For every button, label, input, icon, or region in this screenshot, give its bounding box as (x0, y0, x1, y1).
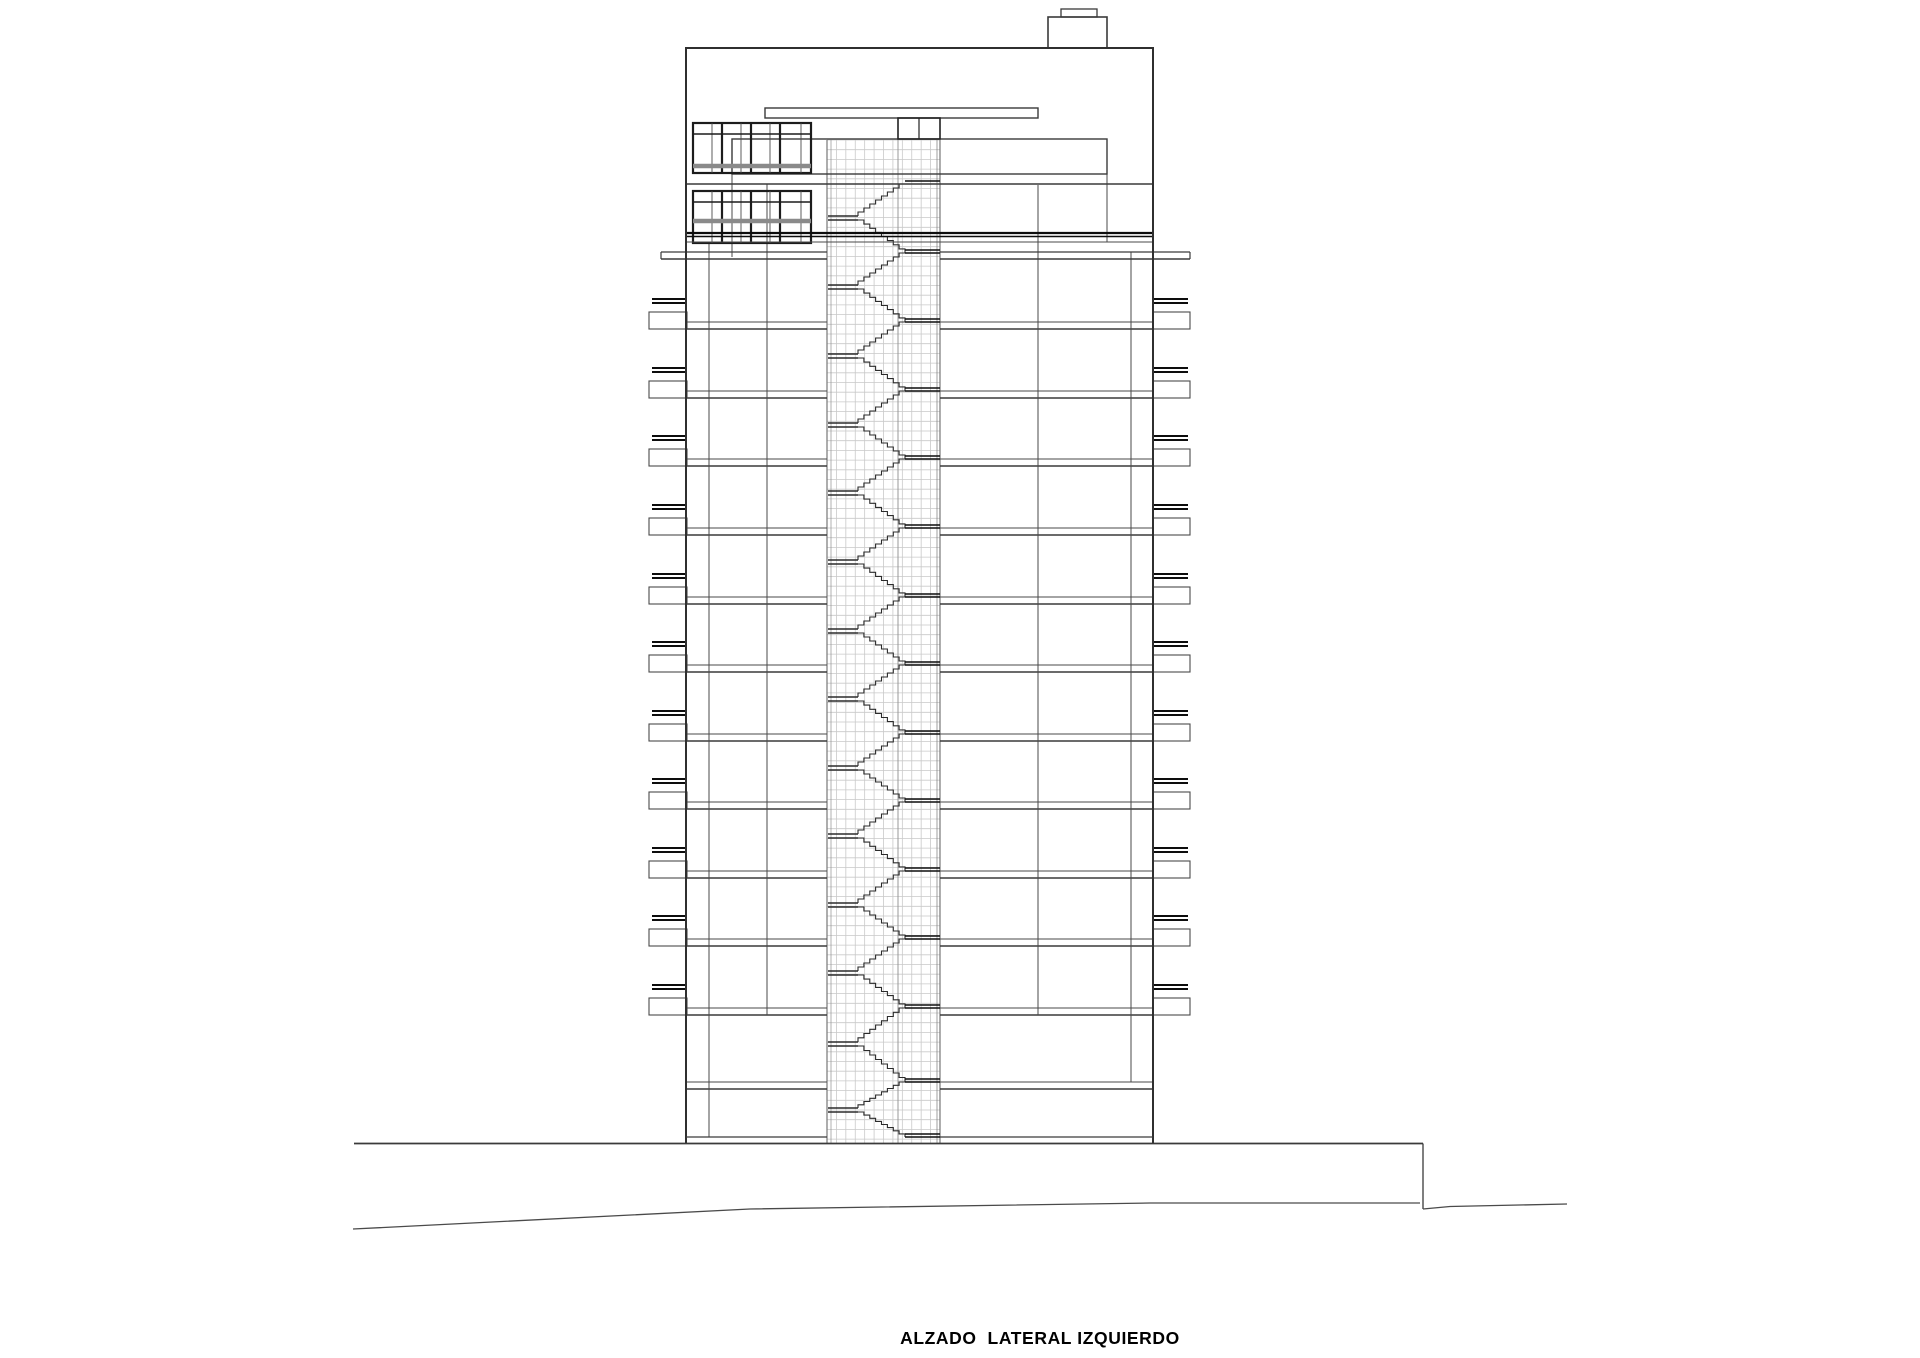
drawing-sheet: ALZADO LATERAL IZQUIERDO (0, 0, 1920, 1358)
elevation-drawing (0, 0, 1920, 1358)
drawing-caption: ALZADO LATERAL IZQUIERDO (860, 1328, 1220, 1349)
